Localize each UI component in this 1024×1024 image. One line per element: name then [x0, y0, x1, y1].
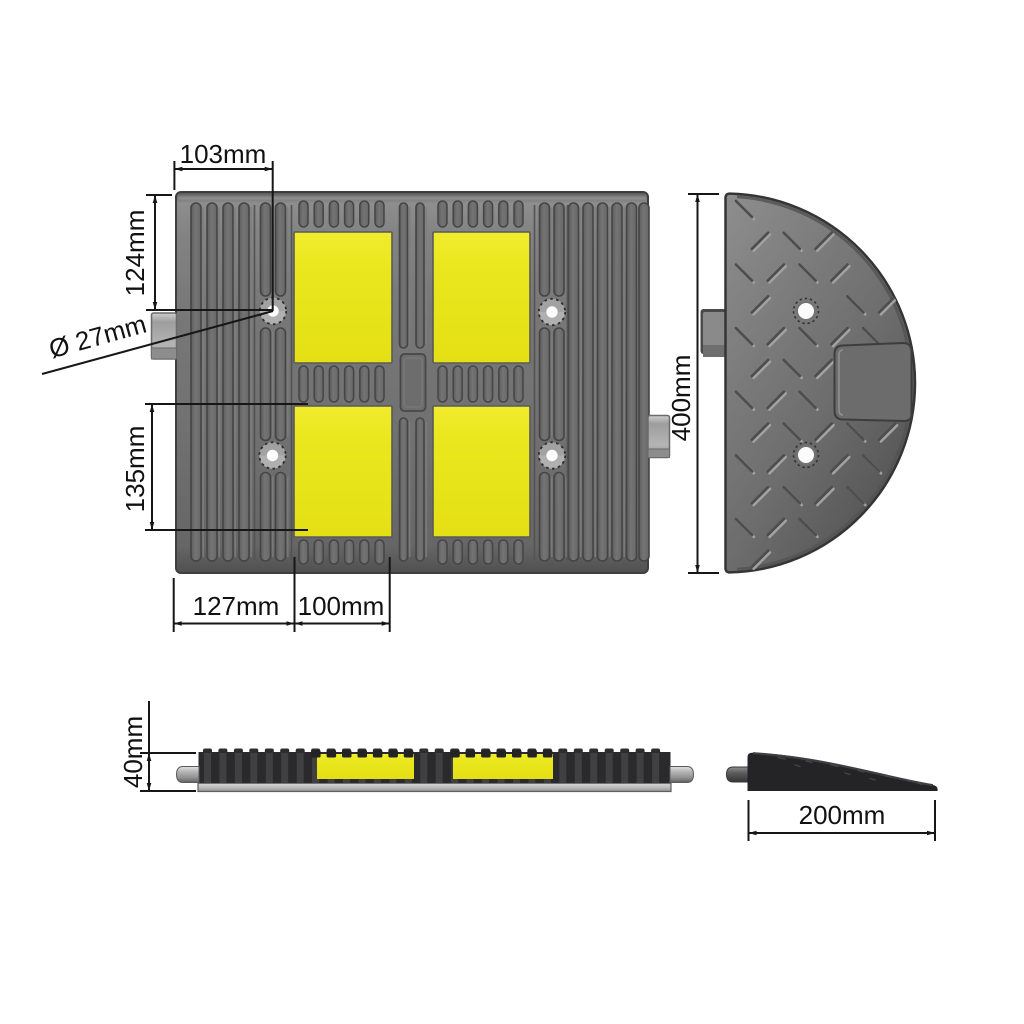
- svg-text:200mm: 200mm: [799, 800, 886, 830]
- svg-text:135mm: 135mm: [120, 426, 150, 513]
- svg-text:400mm: 400mm: [666, 355, 696, 442]
- svg-text:100mm: 100mm: [298, 591, 385, 621]
- svg-text:124mm: 124mm: [120, 210, 150, 297]
- svg-text:40mm: 40mm: [118, 716, 148, 788]
- svg-text:103mm: 103mm: [180, 139, 267, 169]
- svg-text:127mm: 127mm: [193, 591, 280, 621]
